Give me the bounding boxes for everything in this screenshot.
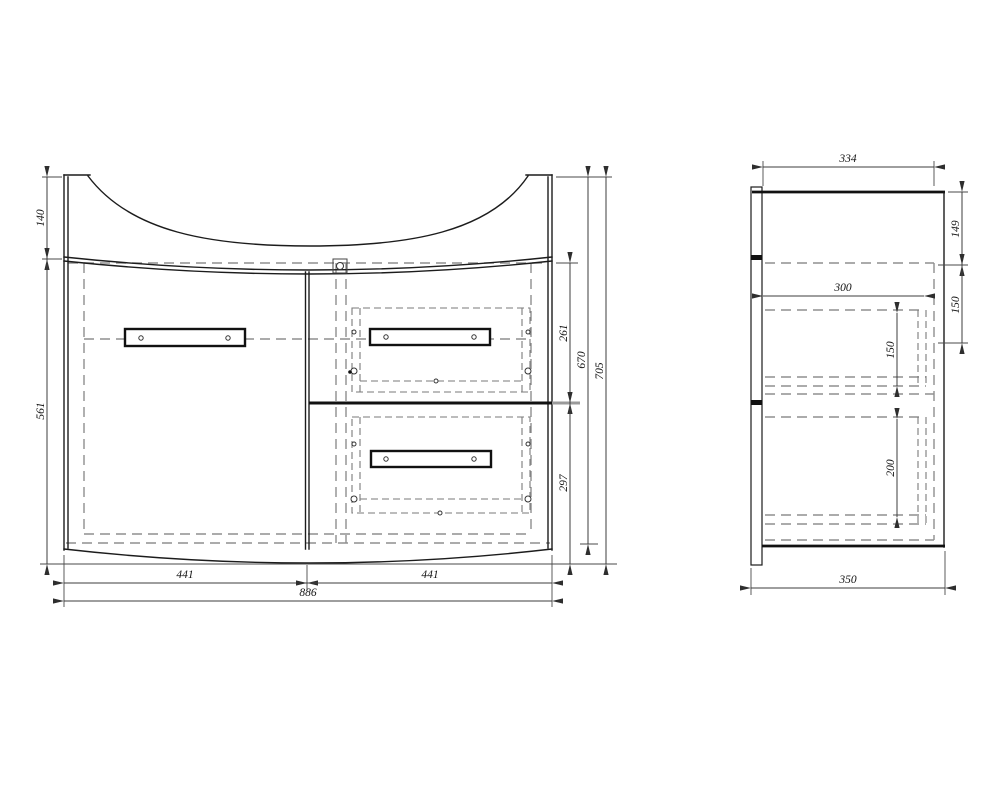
dim-cabinet-height: 561 — [35, 402, 47, 419]
dim-lower-drawer-inner-height: 200 — [885, 459, 897, 477]
side-dim-bottom: 350 — [751, 551, 945, 595]
dim-overall-depth: 350 — [838, 574, 857, 586]
upper-drawer-handle — [370, 329, 490, 345]
dim-upper-drawer-height: 261 — [558, 324, 570, 341]
dim-lower-drawer-height: 297 — [558, 473, 570, 492]
dim-interior-depth: 300 — [833, 282, 852, 294]
technical-drawing: 140 561 261 297 670 705 441 — [0, 0, 1000, 800]
dim-drawer-opening-height: 150 — [950, 296, 962, 314]
hinge-plate — [333, 259, 347, 273]
front-panel-edge — [751, 187, 762, 565]
front-view: 140 561 261 297 670 705 441 — [35, 175, 617, 607]
side-outline — [751, 187, 945, 565]
dim-right-section-width: 441 — [421, 569, 438, 581]
basin-curve — [88, 176, 528, 246]
upper-drawer-box — [348, 308, 531, 392]
side-dim-right: 149 150 — [938, 192, 968, 343]
side-hidden-lines — [765, 263, 934, 540]
front-outline — [64, 175, 552, 563]
drawing-canvas: 140 561 261 297 670 705 441 — [0, 0, 1000, 800]
dim-overall-width: 886 — [299, 587, 317, 599]
bottom-curve — [64, 549, 552, 563]
dim-overall-height: 705 — [594, 362, 606, 380]
dim-top-depth: 334 — [838, 153, 857, 165]
dim-interior-height: 670 — [576, 351, 588, 369]
dim-left-door-width: 441 — [176, 569, 193, 581]
door-handle — [125, 329, 245, 346]
dim-basin-height: 140 — [35, 209, 47, 227]
dim-upper-section-height: 149 — [950, 220, 962, 238]
lower-drawer-handle — [371, 451, 491, 467]
side-dim-internal: 300 150 200 — [763, 282, 924, 517]
side-view: 300 150 200 334 149 150 3 — [751, 153, 968, 595]
side-dim-top: 334 — [763, 153, 934, 186]
front-dim-right: 261 297 670 705 — [552, 177, 612, 564]
dim-upper-drawer-inner-height: 150 — [885, 341, 897, 359]
